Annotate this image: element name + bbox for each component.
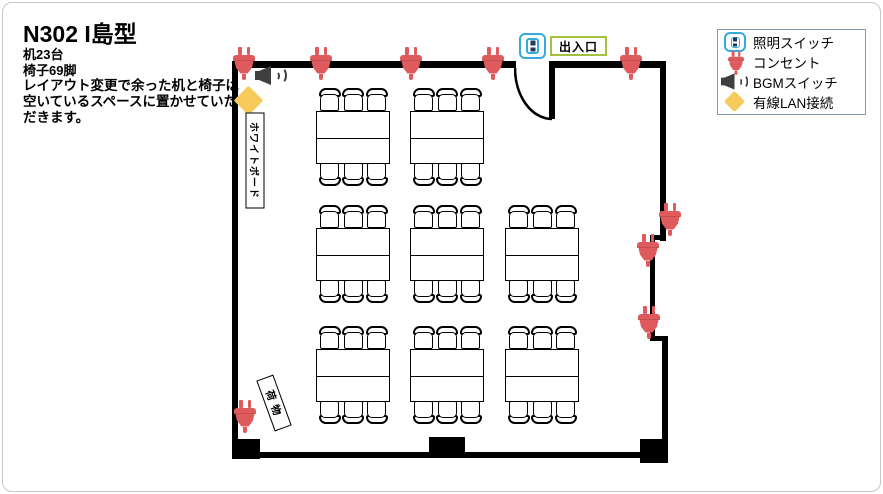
legend-label: 照明スイッチ (753, 32, 834, 52)
chair (508, 326, 529, 349)
exit-label: 出入口 (550, 36, 607, 56)
chair (319, 88, 340, 111)
desk-table (410, 349, 484, 402)
chair (413, 163, 434, 186)
chair (460, 401, 481, 424)
chair (319, 205, 340, 228)
desk-table (410, 111, 484, 164)
chair (460, 326, 481, 349)
wall-left (232, 61, 238, 458)
chair (555, 280, 576, 303)
legend-row-outlet: コンセント (721, 52, 862, 72)
light-switch-icon (724, 32, 746, 52)
desk-table (316, 228, 390, 281)
chair (319, 326, 340, 349)
chair (532, 326, 553, 349)
chair (413, 88, 434, 111)
table-island (505, 205, 579, 305)
chair (437, 205, 458, 228)
chair (555, 205, 576, 228)
outlet-icon (400, 47, 422, 81)
chair (508, 401, 529, 424)
layout-note-line3: だきます。 (23, 110, 89, 126)
chair (532, 280, 553, 303)
chair (555, 326, 576, 349)
chair (437, 88, 458, 111)
pillar-bottom-left (232, 439, 260, 459)
chair (343, 326, 364, 349)
wired-lan-icon (724, 91, 745, 112)
chair (366, 280, 387, 303)
luggage-label: 荷物 (256, 375, 291, 432)
desk-table (316, 349, 390, 402)
legend-row-light-switch: 照明スイッチ (721, 32, 862, 52)
chair (366, 401, 387, 424)
chair (437, 163, 458, 186)
chair (343, 401, 364, 424)
chair (319, 280, 340, 303)
outlet-icon (234, 400, 256, 434)
legend-label: コンセント (753, 52, 821, 72)
legend: 照明スイッチ コンセント BGMスイッチ 有線LAN接続 (717, 29, 866, 115)
chair (343, 88, 364, 111)
pillar-bottom-right (640, 439, 668, 463)
table-island (316, 205, 390, 305)
chair (460, 205, 481, 228)
outlet-icon (482, 47, 504, 81)
table-island (410, 205, 484, 305)
legend-label: 有線LAN接続 (753, 92, 833, 112)
chair (413, 280, 434, 303)
outlet-icon (637, 234, 659, 268)
chair (319, 163, 340, 186)
chair (366, 326, 387, 349)
chair (508, 205, 529, 228)
chair (343, 163, 364, 186)
table-island (316, 88, 390, 188)
chair (413, 326, 434, 349)
chair (437, 401, 458, 424)
table-island (410, 88, 484, 188)
desk-table (505, 228, 579, 281)
chair (366, 205, 387, 228)
chair (366, 88, 387, 111)
chair (319, 401, 340, 424)
layout-note-line2: 空いているスペースに置かせていた (23, 94, 237, 110)
chair (413, 401, 434, 424)
chair (532, 401, 553, 424)
floor-plan-page: N302 I島型 机23台 椅子69脚 レイアウト変更で余った机と椅子は 空いて… (2, 2, 881, 492)
whiteboard-label: ホワイトボード (246, 113, 265, 209)
door-swing-arc (514, 65, 556, 123)
chair (460, 163, 481, 186)
chair (437, 280, 458, 303)
outlet-icon (638, 306, 660, 340)
chair (460, 280, 481, 303)
outlet-icon (233, 47, 255, 81)
desk-table (410, 228, 484, 281)
chair (555, 401, 576, 424)
table-island (505, 326, 579, 426)
chair (366, 163, 387, 186)
outlet-icon (620, 47, 642, 81)
chair (343, 205, 364, 228)
chair (343, 280, 364, 303)
outlet-icon (659, 203, 681, 237)
legend-row-lan: 有線LAN接続 (721, 92, 862, 112)
chair (413, 205, 434, 228)
bgm-speaker-icon (255, 66, 291, 86)
chair (508, 280, 529, 303)
pillar-bottom-middle (429, 437, 465, 458)
chair-count: 椅子69脚 (23, 60, 76, 79)
wall-top-right (552, 61, 666, 68)
chair (460, 88, 481, 111)
desk-table (316, 111, 390, 164)
bgm-speaker-icon (721, 73, 747, 89)
outlet-icon (310, 47, 332, 81)
legend-label: BGMスイッチ (753, 72, 838, 92)
table-island (316, 326, 390, 426)
chair (532, 205, 553, 228)
legend-row-bgm: BGMスイッチ (721, 72, 862, 92)
table-island (410, 326, 484, 426)
chair (437, 326, 458, 349)
desk-table (505, 349, 579, 402)
layout-note-line1: レイアウト変更で余った机と椅子は (23, 78, 239, 94)
light-switch-icon (519, 33, 546, 59)
